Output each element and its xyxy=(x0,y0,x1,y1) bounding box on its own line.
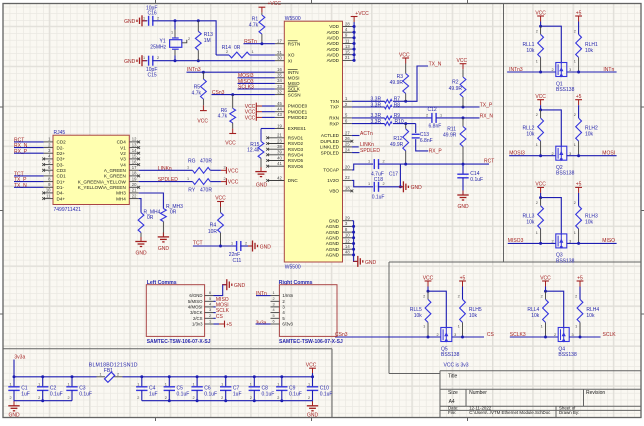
svg-text:2: 2 xyxy=(536,30,538,34)
svg-text:1: 1 xyxy=(171,31,173,35)
svg-text:CD4: CD4 xyxy=(117,140,127,145)
svg-text:INTn: INTn xyxy=(603,67,614,73)
svg-text:2: 2 xyxy=(117,373,119,377)
svg-text:20: 20 xyxy=(132,182,137,187)
svg-text:0.1uF: 0.1uF xyxy=(50,391,63,397)
svg-text:24: 24 xyxy=(345,147,350,152)
svg-text:1: 1 xyxy=(67,382,69,386)
svg-text:Drawn By:: Drawn By: xyxy=(559,410,579,415)
svg-text:2: 2 xyxy=(308,396,310,400)
svg-text:4: 4 xyxy=(209,303,211,307)
svg-text:13: 13 xyxy=(345,44,350,49)
svg-text:VCC: VCC xyxy=(535,10,546,16)
svg-text:12.4k: 12.4k xyxy=(247,148,260,154)
svg-text:1/Intn: 1/Intn xyxy=(282,293,293,298)
svg-text:3/SCK: 3/SCK xyxy=(190,310,203,315)
svg-text:10k: 10k xyxy=(585,132,594,138)
svg-text:K_YELLOW\A_GREEN: K_YELLOW\A_GREEN xyxy=(78,185,126,190)
svg-text:3v3a: 3v3a xyxy=(14,355,25,361)
svg-text:26: 26 xyxy=(345,136,350,141)
svg-text:SPDLED: SPDLED xyxy=(360,148,380,154)
svg-text:AGND: AGND xyxy=(326,230,340,235)
svg-text:+VCC: +VCC xyxy=(268,1,282,7)
svg-text:2: 2 xyxy=(552,152,554,156)
svg-text:22: 22 xyxy=(132,193,137,198)
svg-text:PMODE2: PMODE2 xyxy=(288,115,308,120)
svg-text:43: 43 xyxy=(277,112,282,117)
svg-text:GND: GND xyxy=(135,250,147,256)
svg-text:42: 42 xyxy=(277,175,282,180)
svg-text:+5: +5 xyxy=(577,275,583,281)
svg-text:RXN: RXN xyxy=(329,116,339,121)
svg-text:25MHz: 25MHz xyxy=(150,44,166,50)
svg-text:VCC: VCC xyxy=(228,180,239,186)
svg-text:RSVD6: RSVD6 xyxy=(288,164,304,169)
svg-text:VCC: VCC xyxy=(245,115,256,121)
svg-text:25: 25 xyxy=(345,142,350,147)
svg-text:19: 19 xyxy=(277,123,282,128)
svg-text:10k: 10k xyxy=(531,313,540,319)
svg-text:4: 4 xyxy=(272,308,274,312)
svg-text:LINKLED: LINKLED xyxy=(320,145,340,150)
svg-text:VDD: VDD xyxy=(329,24,339,29)
svg-text:RSVD5: RSVD5 xyxy=(288,158,304,163)
svg-text:1uF: 1uF xyxy=(149,391,158,397)
svg-text:5/MISO: 5/MISO xyxy=(188,299,203,304)
svg-text:3v3a: 3v3a xyxy=(256,320,267,326)
svg-text:20: 20 xyxy=(345,165,350,170)
svg-text:1: 1 xyxy=(187,177,189,181)
svg-text:1: 1 xyxy=(536,60,538,64)
svg-text:0.1uF: 0.1uF xyxy=(204,391,217,397)
svg-text:ACTLED: ACTLED xyxy=(321,133,340,138)
svg-text:RX_P: RX_P xyxy=(14,149,28,155)
svg-text:SCSN: SCSN xyxy=(288,92,301,97)
svg-text:2: 2 xyxy=(574,113,576,117)
svg-text:34: 34 xyxy=(277,78,282,83)
svg-text:49.9R: 49.9R xyxy=(449,86,463,92)
svg-text:PMODE1: PMODE1 xyxy=(288,109,308,114)
svg-text:C12: C12 xyxy=(428,107,437,113)
svg-text:AGND: AGND xyxy=(326,247,340,252)
svg-text:10k: 10k xyxy=(469,313,478,319)
svg-text:BSS138: BSS138 xyxy=(556,258,575,264)
svg-text:1: 1 xyxy=(536,143,538,147)
svg-text:2: 2 xyxy=(157,56,159,60)
svg-text:7499711421: 7499711421 xyxy=(54,207,82,213)
svg-text:1: 1 xyxy=(440,113,442,117)
svg-text:1: 1 xyxy=(368,159,370,163)
svg-text:VCC is 3v3: VCC is 3v3 xyxy=(444,362,469,368)
svg-text:RSTN: RSTN xyxy=(288,41,301,46)
svg-text:0.1uF: 0.1uF xyxy=(372,194,385,200)
svg-text:49.9R: 49.9R xyxy=(390,142,404,148)
svg-text:2: 2 xyxy=(458,295,460,299)
svg-text:32: 32 xyxy=(277,89,282,94)
svg-text:RSVD1: RSVD1 xyxy=(288,136,304,141)
svg-text:INTN: INTN xyxy=(288,70,299,75)
svg-text:GND: GND xyxy=(256,183,268,189)
svg-text:1: 1 xyxy=(38,382,40,386)
svg-text:1: 1 xyxy=(368,182,370,186)
svg-text:12: 12 xyxy=(345,238,350,243)
svg-text:39: 39 xyxy=(277,150,282,155)
svg-text:ACTn: ACTn xyxy=(360,131,373,137)
svg-text:2: 2 xyxy=(554,333,556,337)
svg-text:2: 2 xyxy=(137,396,139,400)
svg-text:TOCAP: TOCAP xyxy=(323,168,339,173)
svg-text:TX_N: TX_N xyxy=(429,62,442,68)
svg-text:CD1: CD1 xyxy=(57,174,67,179)
svg-text:11: 11 xyxy=(345,38,350,43)
svg-text:2: 2 xyxy=(221,396,223,400)
svg-text:RSVD2: RSVD2 xyxy=(288,141,304,146)
svg-text:10R: 10R xyxy=(208,229,218,235)
svg-text:LINKn: LINKn xyxy=(158,166,172,172)
svg-text:GND: GND xyxy=(124,59,136,65)
svg-text:GND: GND xyxy=(329,218,340,223)
svg-text:D1-: D1- xyxy=(57,185,65,190)
svg-text:4/MOSI: 4/MOSI xyxy=(188,305,203,310)
svg-text:AGND: AGND xyxy=(326,224,340,229)
svg-text:D3-: D3- xyxy=(57,162,65,167)
svg-text:TX_N: TX_N xyxy=(14,183,27,189)
svg-text:BLM18BD121SN1D: BLM18BD121SN1D xyxy=(89,362,138,368)
svg-text:+5: +5 xyxy=(226,322,232,328)
svg-text:2: 2 xyxy=(277,396,279,400)
svg-text:1: 1 xyxy=(541,325,543,329)
svg-text:R4: R4 xyxy=(210,223,217,229)
svg-text:GND: GND xyxy=(307,412,319,418)
svg-text:MH4: MH4 xyxy=(116,196,126,201)
svg-text:RY: RY xyxy=(188,187,196,193)
svg-text:CD3: CD3 xyxy=(57,168,67,173)
svg-text:2: 2 xyxy=(157,16,159,20)
svg-text:R2: R2 xyxy=(452,80,459,86)
svg-text:TX_P: TX_P xyxy=(480,103,493,109)
svg-text:SCLK: SCLK xyxy=(603,332,617,338)
svg-text:15: 15 xyxy=(345,50,350,55)
svg-text:21: 21 xyxy=(277,133,282,138)
svg-text:49.9R: 49.9R xyxy=(443,133,457,139)
svg-text:2: 2 xyxy=(426,113,428,117)
svg-text:RX_N: RX_N xyxy=(480,113,494,119)
svg-text:470R: 470R xyxy=(200,159,212,165)
svg-text:BSS138: BSS138 xyxy=(558,352,577,358)
svg-text:44: 44 xyxy=(277,107,282,112)
svg-text:VCC: VCC xyxy=(535,182,546,188)
svg-text:C15: C15 xyxy=(148,73,157,79)
svg-text:30: 30 xyxy=(277,56,282,61)
svg-text:2: 2 xyxy=(423,295,425,299)
svg-text:10k: 10k xyxy=(526,132,535,138)
svg-text:2: 2 xyxy=(67,396,69,400)
svg-text:31: 31 xyxy=(277,50,282,55)
svg-text:2: 2 xyxy=(536,113,538,117)
svg-text:D2+: D2+ xyxy=(57,151,66,156)
svg-text:CD2: CD2 xyxy=(57,140,67,145)
svg-text:16: 16 xyxy=(277,67,282,72)
svg-text:RCT: RCT xyxy=(484,159,494,165)
svg-text:SAMTEC-TSW-106-07-X-SJ: SAMTEC-TSW-106-07-X-SJ xyxy=(147,339,211,345)
svg-text:1: 1 xyxy=(137,382,139,386)
svg-text:29: 29 xyxy=(345,216,350,221)
svg-text:1: 1 xyxy=(143,16,145,20)
svg-text:19: 19 xyxy=(132,176,137,181)
svg-text:+5: +5 xyxy=(576,182,582,188)
svg-text:VCC: VCC xyxy=(215,196,226,202)
svg-text:0.1uF: 0.1uF xyxy=(177,391,190,397)
svg-text:V1: V1 xyxy=(120,145,126,150)
svg-text:D2-: D2- xyxy=(57,145,65,150)
svg-text:CS: CS xyxy=(216,314,224,320)
svg-text:2: 2 xyxy=(38,396,40,400)
svg-text:3: 3 xyxy=(209,308,211,312)
svg-text:2: 2 xyxy=(165,396,167,400)
svg-text:4.7k: 4.7k xyxy=(218,114,228,120)
svg-text:0.1uF: 0.1uF xyxy=(470,177,483,183)
svg-text:RJ45: RJ45 xyxy=(54,130,66,136)
svg-text:VCC: VCC xyxy=(306,362,317,368)
svg-text:1: 1 xyxy=(536,231,538,235)
svg-text:2: 2 xyxy=(382,159,384,163)
svg-text:4.7k: 4.7k xyxy=(192,91,202,97)
svg-text:11: 11 xyxy=(46,193,51,198)
svg-text:DNC: DNC xyxy=(288,178,299,183)
svg-text:SCLK: SCLK xyxy=(288,87,301,92)
svg-text:BSS138: BSS138 xyxy=(556,171,575,177)
svg-text:GND: GND xyxy=(234,283,246,289)
svg-text:45: 45 xyxy=(277,101,282,106)
svg-text:GND: GND xyxy=(124,19,136,25)
svg-text:AVDD: AVDD xyxy=(327,47,340,52)
svg-text:MOSI: MOSI xyxy=(288,76,300,81)
svg-text:470R: 470R xyxy=(200,187,212,193)
svg-text:MISO: MISO xyxy=(288,81,300,86)
svg-text:6/GND: 6/GND xyxy=(189,293,202,298)
svg-text:22: 22 xyxy=(345,175,350,180)
svg-text:1/3v3: 1/3v3 xyxy=(192,322,203,327)
svg-text:2: 2 xyxy=(272,297,274,301)
svg-text:AGND: AGND xyxy=(326,253,340,258)
svg-text:1: 1 xyxy=(308,382,310,386)
svg-text:1: 1 xyxy=(458,325,460,329)
svg-text:4.7k: 4.7k xyxy=(249,22,259,28)
svg-text:1: 1 xyxy=(272,291,274,295)
svg-text:AVDD: AVDD xyxy=(327,58,340,63)
svg-text:10k: 10k xyxy=(585,219,594,225)
svg-text:SPDLED: SPDLED xyxy=(158,177,178,183)
svg-text:VCC: VCC xyxy=(423,275,434,281)
svg-text:RSVD3: RSVD3 xyxy=(288,147,304,152)
svg-text:6/3v3: 6/3v3 xyxy=(282,322,293,327)
svg-text:2: 2 xyxy=(536,201,538,205)
svg-text:41: 41 xyxy=(277,161,282,166)
svg-text:R3: R3 xyxy=(397,74,404,80)
svg-text:6: 6 xyxy=(272,320,274,324)
svg-text:21: 21 xyxy=(132,188,137,193)
svg-text:AVDD: AVDD xyxy=(327,36,340,41)
svg-text:+VCC: +VCC xyxy=(355,11,369,17)
svg-text:2: 2 xyxy=(541,295,543,299)
svg-text:Size: Size xyxy=(448,390,458,396)
svg-text:BSS138: BSS138 xyxy=(556,87,575,93)
svg-text:2: 2 xyxy=(226,50,228,54)
svg-text:1: 1 xyxy=(187,166,189,170)
svg-text:D1+: D1+ xyxy=(57,179,66,184)
svg-text:1: 1 xyxy=(574,60,576,64)
svg-text:XO: XO xyxy=(288,53,295,58)
svg-text:18: 18 xyxy=(132,171,137,176)
svg-text:RX_P: RX_P xyxy=(429,148,443,154)
svg-text:TXP: TXP xyxy=(330,105,339,110)
svg-text:1: 1 xyxy=(99,373,101,377)
svg-text:5: 5 xyxy=(209,297,211,301)
svg-text:12: 12 xyxy=(132,137,137,142)
svg-text:17: 17 xyxy=(277,39,282,44)
svg-text:GND: GND xyxy=(457,204,469,210)
svg-text:GND: GND xyxy=(158,246,170,252)
svg-text:RXP: RXP xyxy=(330,121,339,126)
svg-text:1: 1 xyxy=(574,231,576,235)
svg-text:VBO: VBO xyxy=(329,189,339,194)
svg-text:5: 5 xyxy=(272,314,274,318)
svg-text:10k: 10k xyxy=(414,313,423,319)
svg-text:2: 2 xyxy=(209,314,211,318)
svg-text:18: 18 xyxy=(345,186,350,191)
svg-text:TXN: TXN xyxy=(330,99,339,104)
svg-text:6.8nF: 6.8nF xyxy=(420,138,433,144)
svg-text:1: 1 xyxy=(575,325,577,329)
svg-text:+5: +5 xyxy=(460,275,466,281)
svg-text:VCC: VCC xyxy=(197,118,208,124)
svg-text:Number: Number xyxy=(469,390,487,396)
svg-text:15: 15 xyxy=(132,154,137,159)
svg-text:C17: C17 xyxy=(389,171,398,177)
svg-text:2: 2 xyxy=(574,30,576,34)
svg-text:10: 10 xyxy=(345,233,350,238)
svg-text:1: 1 xyxy=(209,320,211,324)
svg-text:40: 40 xyxy=(277,155,282,160)
svg-text:1uF: 1uF xyxy=(233,391,242,397)
svg-text:2: 2 xyxy=(223,166,225,170)
svg-text:GND: GND xyxy=(260,244,272,250)
svg-text:D4+: D4+ xyxy=(57,196,66,201)
svg-text:1M: 1M xyxy=(204,38,211,44)
svg-text:0.1uF: 0.1uF xyxy=(79,391,92,397)
svg-text:27: 27 xyxy=(345,130,350,135)
svg-text:C11: C11 xyxy=(233,258,242,264)
svg-text:1: 1 xyxy=(193,382,195,386)
svg-text:2: 2 xyxy=(250,396,252,400)
svg-text:1V2O: 1V2O xyxy=(327,178,339,183)
svg-text:0R: 0R xyxy=(147,215,154,221)
svg-text:DUPLED: DUPLED xyxy=(320,139,339,144)
svg-text:16: 16 xyxy=(132,159,137,164)
svg-text:W5500: W5500 xyxy=(285,264,301,270)
svg-text:File:: File: xyxy=(448,410,456,415)
svg-text:0.1uF: 0.1uF xyxy=(289,391,302,397)
svg-text:BSS138: BSS138 xyxy=(441,352,460,358)
svg-text:17: 17 xyxy=(132,165,137,170)
svg-text:1: 1 xyxy=(9,382,11,386)
svg-text:21: 21 xyxy=(345,55,350,60)
svg-text:1: 1 xyxy=(221,382,223,386)
svg-text:0R: 0R xyxy=(170,210,177,216)
svg-text:14: 14 xyxy=(345,244,350,249)
svg-text:PMODE0: PMODE0 xyxy=(288,104,308,109)
svg-text:1: 1 xyxy=(143,56,145,60)
svg-text:+5: +5 xyxy=(576,94,582,100)
svg-text:10k: 10k xyxy=(526,219,535,225)
svg-text:1: 1 xyxy=(251,50,253,54)
svg-text:1: 1 xyxy=(277,382,279,386)
svg-text:R11: R11 xyxy=(447,126,456,132)
svg-text:SAMTEC-TSW-106-07-X-SJ: SAMTEC-TSW-106-07-X-SJ xyxy=(279,339,343,345)
svg-text:A_GREEN: A_GREEN xyxy=(104,168,126,173)
svg-text:14: 14 xyxy=(132,148,137,153)
svg-text:1: 1 xyxy=(574,143,576,147)
svg-text:GND: GND xyxy=(411,185,423,191)
svg-text:VCC: VCC xyxy=(535,94,546,100)
svg-text:K_GREEN: K_GREEN xyxy=(104,174,126,179)
svg-text:2/CS: 2/CS xyxy=(193,316,203,321)
svg-text:1: 1 xyxy=(231,241,233,245)
svg-text:28: 28 xyxy=(345,21,350,26)
svg-text:Title: Title xyxy=(448,374,457,380)
svg-text:2: 2 xyxy=(188,37,190,41)
svg-text:AVDD: AVDD xyxy=(327,30,340,35)
svg-text:K_GREEN\A_YELLOW: K_GREEN\A_YELLOW xyxy=(78,179,127,184)
svg-text:XI: XI xyxy=(288,58,292,63)
svg-text:10: 10 xyxy=(46,188,51,193)
svg-text:2: 2 xyxy=(9,396,11,400)
svg-text:CSn3: CSn3 xyxy=(212,90,225,96)
svg-text:AVDD: AVDD xyxy=(327,41,340,46)
svg-text:SPDLED: SPDLED xyxy=(321,150,340,155)
svg-text:RSTn: RSTn xyxy=(244,39,257,45)
svg-text:2: 2 xyxy=(575,295,577,299)
svg-text:10k: 10k xyxy=(586,313,595,319)
svg-text:VCC: VCC xyxy=(228,168,239,174)
svg-text:GND: GND xyxy=(365,260,377,266)
svg-text:13: 13 xyxy=(132,142,137,147)
svg-text:A4: A4 xyxy=(449,399,455,405)
svg-text:0R: 0R xyxy=(234,45,241,51)
svg-text:V4: V4 xyxy=(120,162,126,167)
svg-text:CS: CS xyxy=(487,332,495,338)
svg-text:0.1uF: 0.1uF xyxy=(320,391,333,397)
svg-text:RG: RG xyxy=(188,159,196,165)
svg-text:1uF: 1uF xyxy=(21,391,30,397)
svg-text:23: 23 xyxy=(277,138,282,143)
svg-text:C:\Users\..\VTM Ethernet Modul: C:\Users\..\VTM Ethernet Module.SchDoc xyxy=(469,410,551,415)
svg-text:MISO: MISO xyxy=(602,238,615,244)
svg-text:AVDD: AVDD xyxy=(327,52,340,57)
svg-text:0.1uF: 0.1uF xyxy=(262,391,275,397)
svg-text:MH3: MH3 xyxy=(116,191,126,196)
svg-text:GND: GND xyxy=(8,412,20,418)
svg-text:C16: C16 xyxy=(148,11,157,17)
svg-text:6: 6 xyxy=(209,291,211,295)
svg-text:1: 1 xyxy=(250,382,252,386)
svg-text:38: 38 xyxy=(277,144,282,149)
svg-text:Revision: Revision xyxy=(586,390,605,396)
svg-text:W5500: W5500 xyxy=(285,16,301,22)
svg-text:V3: V3 xyxy=(120,157,126,162)
svg-text:RSVD4: RSVD4 xyxy=(288,153,304,158)
svg-text:6.8nF: 6.8nF xyxy=(429,123,442,129)
